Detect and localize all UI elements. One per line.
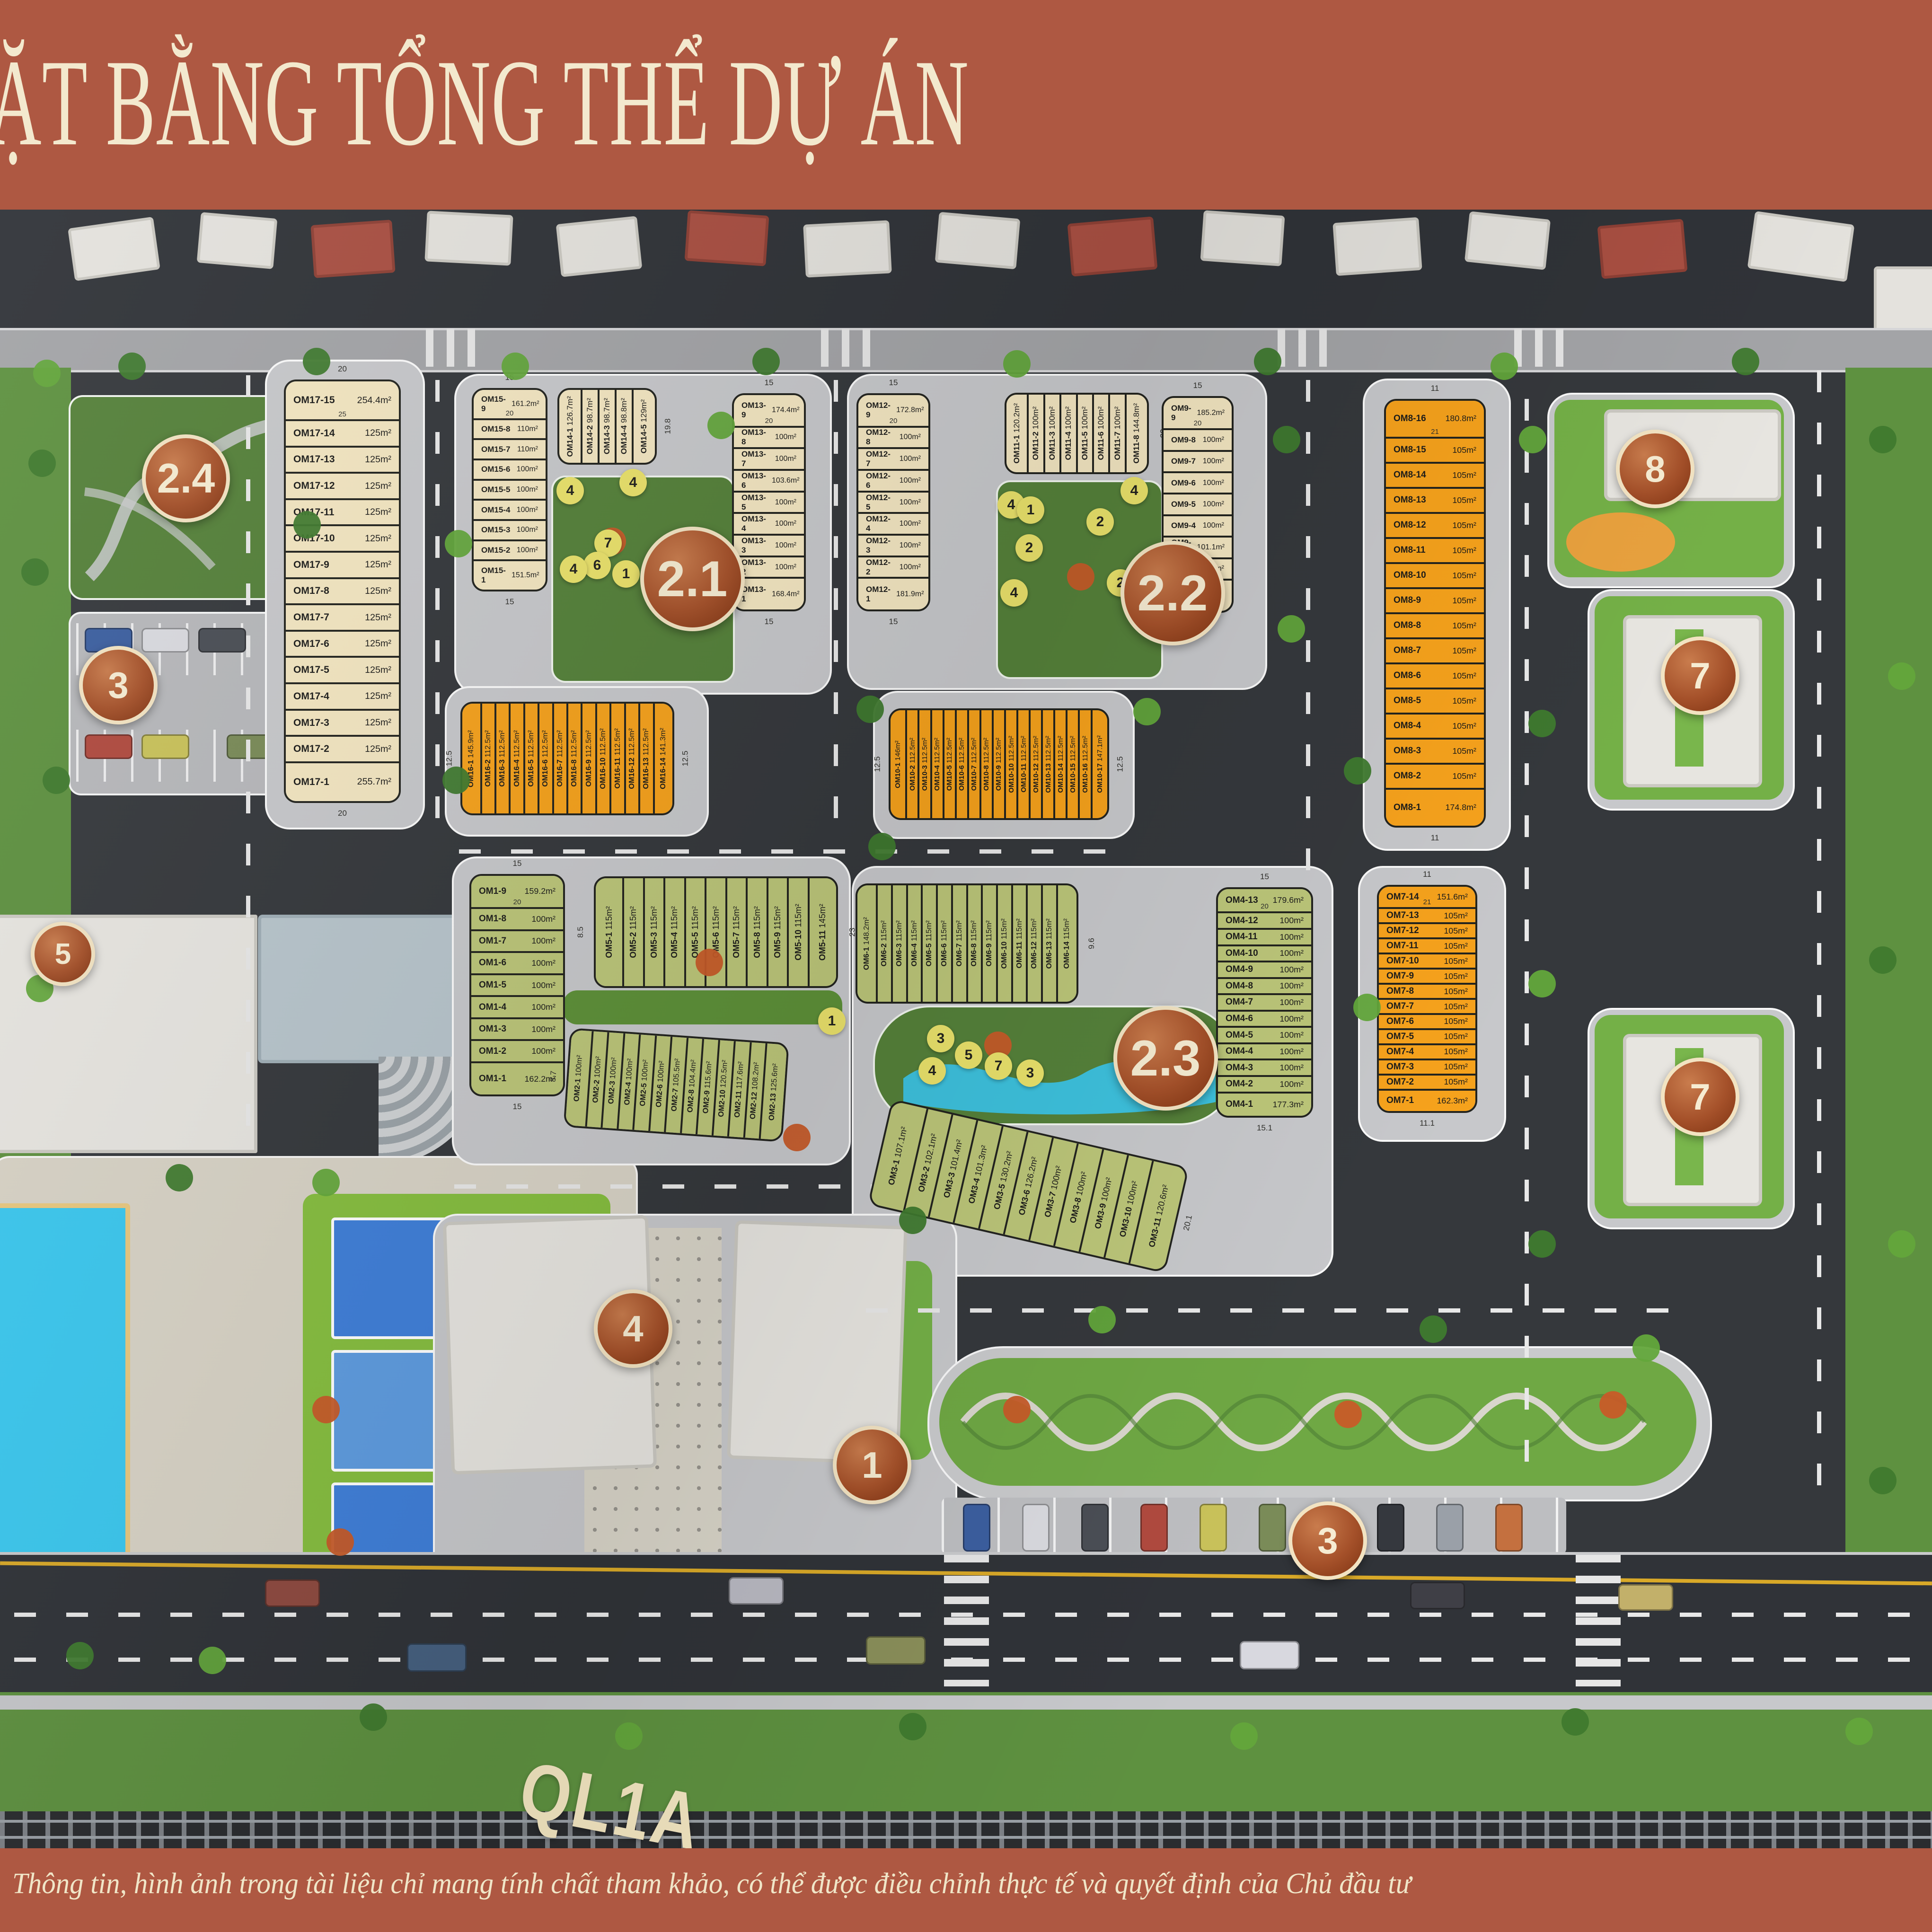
- lot-om10-13: OM10-13 112.5m²5: [1041, 710, 1053, 818]
- dim-label: 20: [765, 417, 773, 425]
- parked-car: [198, 628, 246, 653]
- lot-om4-13: OM4-13179.6m²9.620: [1218, 889, 1311, 911]
- lot-om17-1: OM17-1255.7m²10.6: [286, 761, 399, 801]
- dim-label: 15: [889, 378, 898, 388]
- lot-om4-11: OM4-11100m²5: [1218, 928, 1311, 944]
- tree: [1278, 615, 1305, 643]
- amenity-marker-2: 2: [1015, 534, 1043, 562]
- lot-om6-10: OM6-10 115m²5: [996, 885, 1011, 1002]
- dim-label: 15: [513, 859, 522, 868]
- block-om7: OM7-14151.6m²3.421OM7-13105m²5OM7-12105m…: [1377, 885, 1477, 1113]
- lot-om1-7: OM1-7100m²5: [471, 929, 563, 952]
- amenity-marker-4: 4: [918, 1057, 946, 1085]
- tree: [1353, 994, 1381, 1021]
- dim-label: 20: [1261, 902, 1269, 910]
- lot-om7-9: OM7-9105m²5: [1379, 968, 1475, 983]
- dim-label: 15: [1260, 872, 1269, 882]
- road-dashes: [459, 849, 1121, 854]
- lot-om7-1: OM7-1162.3m²2.9: [1379, 1089, 1475, 1111]
- block-om11: OM11-1 120.2m²620OM11-2 100m²5OM11-3 100…: [1005, 393, 1149, 474]
- amenity-marker-3: 3: [927, 1025, 954, 1052]
- marker-8: 8: [1616, 430, 1694, 508]
- tree: [1088, 1306, 1116, 1333]
- dim-label: 12.5: [445, 750, 454, 766]
- lot-om8-14: OM8-14105m²5: [1386, 462, 1484, 487]
- block-om14: OM14-1 126.7m²6.519.7OM14-2 98.7m²5OM14-…: [557, 388, 657, 465]
- tree: [1003, 1396, 1031, 1423]
- lot-om16-1: OM16-1 145.9m²2.722.5: [462, 704, 480, 813]
- lot-om7-5: OM7-5105m²5: [1379, 1028, 1475, 1043]
- tree: [1599, 1391, 1627, 1419]
- tree: [1845, 1718, 1873, 1745]
- lot-om11-2: OM11-2 100m²5: [1027, 395, 1043, 472]
- lot-om4-12: OM4-12100m²5: [1218, 911, 1311, 928]
- tree: [66, 1642, 94, 1669]
- parked-car: [85, 734, 132, 759]
- tree: [312, 1396, 340, 1423]
- parked-car: [963, 1504, 990, 1552]
- lot-om8-3: OM8-3105m²5: [1386, 738, 1484, 763]
- lot-om6-4: OM6-4 115m²5: [906, 885, 921, 1002]
- lot-om1-8: OM1-8100m²5: [471, 907, 563, 929]
- lot-om8-10: OM8-10105m²5: [1386, 562, 1484, 587]
- lot-om10-10: OM10-10 112.5m²5: [1004, 710, 1016, 818]
- lot-om8-7: OM8-7105m²5: [1386, 637, 1484, 662]
- house: [1332, 217, 1422, 276]
- marker-3: 3: [1288, 1501, 1367, 1580]
- site-plan-poster: OM17-15254.4m²10.625OM17-14125m²5OM17-13…: [0, 0, 1932, 1932]
- lot-om12-6: OM12-6100m²5: [858, 469, 928, 491]
- lot-om5-10: OM5-10 115m²5: [787, 878, 808, 986]
- marker-2.2: 2.2: [1120, 541, 1225, 645]
- parked-car: [1495, 1504, 1523, 1552]
- marker-7: 7: [1661, 636, 1739, 715]
- dim-label: 12.5: [1115, 756, 1125, 772]
- lot-om10-17: OM10-17 147.1m²2.7: [1091, 710, 1107, 818]
- amenity-marker-4: 4: [1120, 477, 1148, 504]
- house: [684, 210, 769, 266]
- lot-om16-12: OM16-12 112.5m²5: [624, 704, 638, 813]
- tree: [856, 696, 884, 723]
- lot-om12-4: OM12-4100m²5: [858, 512, 928, 534]
- car: [1240, 1641, 1299, 1669]
- tree: [1273, 426, 1300, 453]
- header-band: ẶT BẰNG TỔNG THỂ DỰ ÁN: [0, 0, 1932, 210]
- lot-om8-12: OM8-12105m²5: [1386, 512, 1484, 537]
- dim-label: 15: [765, 378, 774, 388]
- car: [1410, 1582, 1465, 1609]
- lot-om6-8: OM6-8 115m²5: [966, 885, 981, 1002]
- road-dashes: [435, 380, 440, 848]
- lot-om12-2: OM12-2100m²5: [858, 556, 928, 577]
- lot-om1-6: OM1-6100m²5: [471, 951, 563, 973]
- house: [1464, 211, 1551, 270]
- dim-label: 11: [1431, 833, 1439, 843]
- tree: [1869, 1467, 1897, 1494]
- tree: [899, 1207, 926, 1234]
- tree: [1519, 426, 1546, 453]
- lot-om9-8: OM9-8100m²5: [1164, 428, 1232, 450]
- lot-om10-12: OM10-12 112.5m²5: [1029, 710, 1041, 818]
- lot-om6-14: OM6-14 115m²5: [1056, 885, 1076, 1002]
- dim-label: 20: [1194, 419, 1202, 427]
- tree: [1133, 698, 1161, 725]
- lot-om6-2: OM6-2 115m²5: [876, 885, 891, 1002]
- lot-om15-6: OM15-6100m²5: [474, 459, 546, 479]
- lot-om13-7: OM13-7100m²5: [734, 447, 804, 469]
- south-sidewalk: [0, 1695, 1932, 1710]
- lot-om12-9: OM12-9172.8m²4.120: [858, 395, 928, 426]
- lot-om7-14: OM7-14151.6m²3.421: [1379, 887, 1475, 907]
- highway-crosswalk: [944, 1555, 989, 1686]
- house: [1200, 210, 1285, 266]
- lot-om16-4: OM16-4 112.5m²5: [509, 704, 523, 813]
- house: [424, 211, 513, 265]
- road-dashes: [1817, 371, 1821, 1506]
- dim-label: 25: [338, 410, 346, 418]
- tree: [293, 511, 321, 538]
- block-om8: OM8-16180.8m²4.721OM8-15105m²5OM8-14105m…: [1384, 399, 1486, 828]
- tree: [1528, 710, 1556, 737]
- tree: [21, 558, 49, 586]
- block-om16: OM16-1 145.9m²2.722.5OM16-2 112.5m²5OM16…: [460, 702, 674, 815]
- parked-car: [141, 734, 189, 759]
- lot-om4-10: OM4-10100m²5: [1218, 944, 1311, 961]
- lot-om17-13: OM17-13125m²5: [286, 446, 399, 472]
- tree: [1888, 662, 1915, 690]
- marker-5: 5: [31, 922, 95, 986]
- dim-label: 20: [506, 409, 514, 417]
- lot-om10-6: OM10-6 112.5m²5: [955, 710, 967, 818]
- lot-om7-10: OM7-10105m²5: [1379, 953, 1475, 968]
- block-om17: OM17-15254.4m²10.625OM17-14125m²5OM17-13…: [284, 379, 401, 803]
- dim-label: 12.5: [873, 756, 882, 772]
- lot-om15-9: OM15-9161.2m²3.720: [474, 390, 546, 418]
- dim-label: 15: [513, 1102, 522, 1112]
- tree: [1491, 353, 1518, 380]
- lot-om16-2: OM16-2 112.5m²5: [480, 704, 494, 813]
- highway-crosswalk: [1576, 1555, 1621, 1686]
- tree: [1420, 1315, 1447, 1343]
- tree: [868, 833, 896, 860]
- amenity-marker-5: 5: [955, 1041, 982, 1069]
- crosswalk: [426, 329, 487, 367]
- lot-om8-11: OM8-11105m²5: [1386, 537, 1484, 562]
- amenity-marker-3: 3: [1016, 1059, 1044, 1087]
- block-om12: OM12-9172.8m²4.120OM12-8100m²5OM12-7100m…: [856, 393, 930, 611]
- marker-2.3: 2.3: [1113, 1006, 1218, 1111]
- dim-label: 8.5: [576, 926, 585, 938]
- tree: [696, 949, 723, 976]
- dim-label: 15: [765, 617, 774, 626]
- parked-car: [1022, 1504, 1050, 1552]
- lot-om10-8: OM10-8 112.5m²5: [979, 710, 992, 818]
- lot-om7-11: OM7-11105m²5: [1379, 937, 1475, 953]
- tree: [899, 1713, 926, 1740]
- lot-om17-5: OM17-5125m²5: [286, 656, 399, 682]
- road-dashes: [1525, 399, 1529, 1487]
- tree: [615, 1722, 643, 1750]
- lot-om10-7: OM10-7 112.5m²5: [967, 710, 979, 818]
- lot-om17-8: OM17-8125m²5.4: [286, 577, 399, 604]
- lot-om1-9: OM1-9159.2m²3.620: [471, 876, 563, 907]
- lot-om7-13: OM7-13105m²5: [1379, 907, 1475, 922]
- parked-car: [141, 628, 189, 653]
- lot-om11-5: OM11-5 100m²5: [1076, 395, 1092, 472]
- car: [407, 1643, 467, 1672]
- lot-om12-5: OM12-5100m²5: [858, 491, 928, 512]
- lot-om13-4: OM13-4100m²5: [734, 512, 804, 534]
- master-plan-map: OM17-15254.4m²10.625OM17-14125m²5OM17-13…: [0, 210, 1932, 1848]
- crosswalk: [821, 329, 882, 367]
- dim-label: 11.1: [1420, 1119, 1435, 1128]
- lot-om8-6: OM8-6105m²5: [1386, 662, 1484, 688]
- lot-om10-14: OM10-14 112.5m²5: [1053, 710, 1066, 818]
- lot-om10-11: OM10-11 112.5m²5: [1016, 710, 1029, 818]
- marker-3: 3: [79, 646, 158, 724]
- lot-om6-1: OM6-1 148.2m²6.523: [857, 885, 876, 1002]
- lot-om12-3: OM12-3100m²5: [858, 534, 928, 556]
- tree: [1561, 1708, 1589, 1736]
- tree: [1732, 348, 1759, 375]
- dim-label: 19.8: [663, 418, 672, 434]
- lot-om7-4: OM7-4105m²5: [1379, 1043, 1475, 1059]
- lot-om5-7: OM5-7 115m²5: [725, 878, 746, 986]
- lot-om15-3: OM15-3100m²5: [474, 519, 546, 539]
- block-om2: OM2-1 100m²520OM2-2 100m²5OM2-3 100m²5OM…: [563, 1028, 789, 1142]
- parked-car: [1377, 1504, 1404, 1552]
- car: [866, 1636, 926, 1665]
- lot-om8-13: OM8-13105m²5: [1386, 487, 1484, 512]
- lot-om15-4: OM15-4100m²5: [474, 499, 546, 519]
- dim-label: 11: [1423, 870, 1431, 879]
- lot-om4-4: OM4-4100m²5: [1218, 1042, 1311, 1059]
- dim-label: 11: [1431, 384, 1439, 393]
- house: [310, 220, 395, 278]
- lot-om7-2: OM7-2105m²5: [1379, 1074, 1475, 1089]
- lot-om13-5: OM13-5100m²5: [734, 491, 804, 512]
- dim-label: 8.7: [548, 1070, 559, 1082]
- lot-om11-8: OM11-8 144.8m²7.2: [1125, 395, 1147, 472]
- marker-1: 1: [833, 1426, 911, 1504]
- parked-car: [1140, 1504, 1168, 1552]
- lot-om14-3: OM14-3 98.7m²5: [598, 390, 615, 463]
- lot-om6-5: OM6-5 115m²5: [921, 885, 936, 1002]
- dim-label: 15: [505, 597, 514, 607]
- lot-om16-3: OM16-3 112.5m²5: [494, 704, 509, 813]
- lot-om15-1: OM15-1151.5m²3: [474, 559, 546, 590]
- lot-om17-7: OM17-7125m²4.6: [286, 603, 399, 630]
- lot-om17-15: OM17-15254.4m²10.625: [286, 381, 399, 419]
- lot-om4-7: OM4-7100m²5: [1218, 993, 1311, 1010]
- lot-om6-13: OM6-13 115m²5: [1041, 885, 1056, 1002]
- lot-om7-12: OM7-12105m²5: [1379, 922, 1475, 937]
- amenity-marker-6: 6: [583, 552, 611, 579]
- tree: [1888, 1230, 1915, 1258]
- lot-om7-8: OM7-8105m²5: [1379, 983, 1475, 998]
- lot-om4-6: OM4-6100m²5: [1218, 1010, 1311, 1026]
- lot-om11-7: OM11-7 100m²5: [1108, 395, 1124, 472]
- grass-right-margin: [1845, 368, 1932, 1740]
- dim-label: 20: [338, 809, 347, 818]
- amenity-marker-4: 4: [560, 556, 587, 583]
- lot-om6-7: OM6-7 115m²5: [951, 885, 966, 1002]
- lot-om6-12: OM6-12 115m²5: [1026, 885, 1041, 1002]
- tree: [1003, 350, 1031, 378]
- lot-om16-13: OM16-13 112.5m²5: [638, 704, 653, 813]
- lot-om9-6: OM9-6100m²5: [1164, 471, 1232, 493]
- lot-om17-14: OM17-14125m²5: [286, 419, 399, 446]
- lot-om15-5: OM15-5100m²5: [474, 479, 546, 499]
- lot-om13-6: OM13-6103.6m²5.2: [734, 469, 804, 491]
- lot-om6-6: OM6-6 115m²5: [936, 885, 951, 1002]
- dim-label: 15: [1193, 381, 1202, 390]
- lot-om4-8: OM4-8100m²5: [1218, 977, 1311, 994]
- footer-band: Thông tin, hình ảnh trong tài liệu chỉ m…: [0, 1848, 1932, 1932]
- lot-om5-3: OM5-3 115m²5: [643, 878, 664, 986]
- tree: [1254, 348, 1281, 375]
- amenity-marker-4: 4: [556, 477, 584, 504]
- lot-om1-2: OM1-2100m²5: [471, 1039, 563, 1061]
- lot-om8-1: OM8-1174.8m²4.4: [1386, 788, 1484, 826]
- lot-om1-3: OM1-3100m²5: [471, 1017, 563, 1040]
- lot-om4-9: OM4-9100m²5: [1218, 961, 1311, 977]
- tree: [1632, 1334, 1660, 1362]
- tree: [783, 1124, 811, 1151]
- tree: [199, 1647, 226, 1674]
- lot-om15-2: OM15-2100m²5: [474, 539, 546, 560]
- dim-label: 9.6: [1087, 938, 1096, 949]
- lot-om14-4: OM14-4 98.8m²5: [615, 390, 632, 463]
- lot-om14-2: OM14-2 98.7m²5: [581, 390, 598, 463]
- road-dashes: [866, 1308, 1689, 1313]
- lot-om8-9: OM8-9105m²5: [1386, 587, 1484, 612]
- road-dashes: [454, 1184, 927, 1189]
- lot-om11-3: OM11-3 100m²5: [1043, 395, 1059, 472]
- tree: [1230, 1722, 1258, 1750]
- road-dashes: [834, 380, 838, 848]
- lot-om9-4: OM9-4100m²5: [1164, 514, 1232, 536]
- house: [1597, 219, 1687, 279]
- dim-label: 15.1: [1257, 1123, 1272, 1133]
- dim-label: 21: [1423, 898, 1431, 906]
- lot-om17-6: OM17-6125m²5: [286, 630, 399, 656]
- lot-om17-2: OM17-2125m²5: [286, 735, 399, 761]
- lot-om9-7: OM9-7100m²5: [1164, 450, 1232, 471]
- lot-om7-3: OM7-3105m²5: [1379, 1059, 1475, 1074]
- lot-om8-4: OM8-4105m²5: [1386, 713, 1484, 738]
- lot-om5-4: OM5-4 115m²5: [663, 878, 684, 986]
- amenity-marker-1: 1: [1017, 496, 1044, 524]
- lot-om14-1: OM14-1 126.7m²6.519.7: [559, 390, 581, 463]
- lot-om16-9: OM16-9 112.5m²5: [581, 704, 595, 813]
- tree: [1528, 970, 1556, 997]
- lot-om16-6: OM16-6 112.5m²5: [538, 704, 552, 813]
- lot-om11-4: OM11-4 100m²5: [1059, 395, 1076, 472]
- tree: [33, 360, 61, 387]
- lot-om8-5: OM8-5105m²5: [1386, 688, 1484, 713]
- lot-om7-7: OM7-7105m²5: [1379, 998, 1475, 1013]
- dim-label: 12.5: [680, 750, 690, 766]
- block-om6: OM6-1 148.2m²6.523OM6-2 115m²5OM6-3 115m…: [856, 883, 1078, 1004]
- road-dashes: [246, 375, 250, 1156]
- lot-om10-15: OM10-15 112.5m²5: [1066, 710, 1078, 818]
- promenade-green: [939, 1358, 1696, 1486]
- parked-car: [1081, 1504, 1109, 1552]
- block-om15: OM15-9161.2m²3.720OM15-8110m²5.5OM15-711…: [472, 388, 547, 591]
- tree: [326, 1528, 354, 1556]
- marker-2.4: 2.4: [142, 434, 230, 522]
- lot-om6-11: OM6-11 115m²5: [1011, 885, 1026, 1002]
- dim-label: 21: [1431, 428, 1439, 436]
- parked-car: [1200, 1504, 1227, 1552]
- tree: [707, 412, 735, 439]
- crosswalk: [1278, 329, 1339, 367]
- block-om4: OM4-13179.6m²9.620OM4-12100m²5OM4-11100m…: [1216, 887, 1313, 1118]
- tree: [442, 767, 470, 794]
- lot-om8-2: OM8-2105m²5: [1386, 763, 1484, 788]
- house: [197, 212, 278, 269]
- car: [265, 1579, 320, 1607]
- lot-om15-7: OM15-7110m²5.5: [474, 438, 546, 459]
- dim-label: 15: [889, 617, 898, 626]
- block-om10: OM10-1 146m²2.622.5OM10-2 112.5m²5OM10-3…: [889, 708, 1109, 820]
- lot-om6-3: OM6-3 115m²5: [891, 885, 906, 1002]
- tree: [28, 450, 56, 477]
- parked-car: [1259, 1504, 1286, 1552]
- dim-label: 20: [890, 417, 898, 425]
- lot-om14-5: OM14-5 129m²6.5: [632, 390, 655, 463]
- lot-om13-9: OM13-9174.4m²9.420: [734, 395, 804, 426]
- railway: [0, 1811, 1932, 1848]
- lot-om10-16: OM10-16 112.5m²5: [1078, 710, 1090, 818]
- lot-om13-8: OM13-8100m²5: [734, 426, 804, 448]
- tree: [502, 353, 529, 380]
- lot-om16-5: OM16-5 112.5m²5: [523, 704, 538, 813]
- disclaimer-text: Thông tin, hình ảnh trong tài liệu chỉ m…: [12, 1867, 1411, 1901]
- dim-label: 20: [513, 898, 521, 906]
- lot-om17-3: OM17-3125m²5: [286, 709, 399, 735]
- tree: [1869, 426, 1897, 453]
- playground: [1566, 512, 1675, 572]
- lot-om10-1: OM10-1 146m²2.622.5: [891, 710, 905, 818]
- marker-7: 7: [1661, 1058, 1739, 1136]
- lot-om8-8: OM8-8105m²5: [1386, 612, 1484, 637]
- lot-om5-11: OM5-11 145m²6.3: [808, 878, 836, 986]
- tree: [360, 1703, 387, 1731]
- green-median: [563, 990, 842, 1024]
- block-om1: OM1-9159.2m²3.620OM1-8100m²5OM1-7100m²5O…: [469, 874, 565, 1096]
- dim-label: 20: [338, 364, 347, 374]
- house: [935, 212, 1021, 270]
- lot-om17-12: OM17-12125m²5: [286, 472, 399, 498]
- tree: [1344, 757, 1371, 785]
- house: [1067, 216, 1157, 276]
- amenity-marker-7: 7: [985, 1052, 1012, 1080]
- lot-om17-4: OM17-4125m²5: [286, 682, 399, 709]
- lot-om4-1: OM4-1177.3m²8.5: [1218, 1092, 1311, 1116]
- lot-om15-8: OM15-8110m²5.5: [474, 418, 546, 439]
- lot-om1-4: OM1-4100m²5: [471, 995, 563, 1017]
- lot-om10-9: OM10-9 112.5m²5: [992, 710, 1004, 818]
- lot-om12-7: OM12-7100m²5: [858, 447, 928, 469]
- car: [1618, 1584, 1673, 1611]
- lot-om5-8: OM5-8 115m²5: [746, 878, 767, 986]
- lot-om6-9: OM6-9 115m²5: [981, 885, 996, 1002]
- tree: [118, 353, 146, 380]
- lot-om4-3: OM4-3100m²5: [1218, 1059, 1311, 1075]
- lot-om10-3: OM10-3 112.5m²5: [917, 710, 930, 818]
